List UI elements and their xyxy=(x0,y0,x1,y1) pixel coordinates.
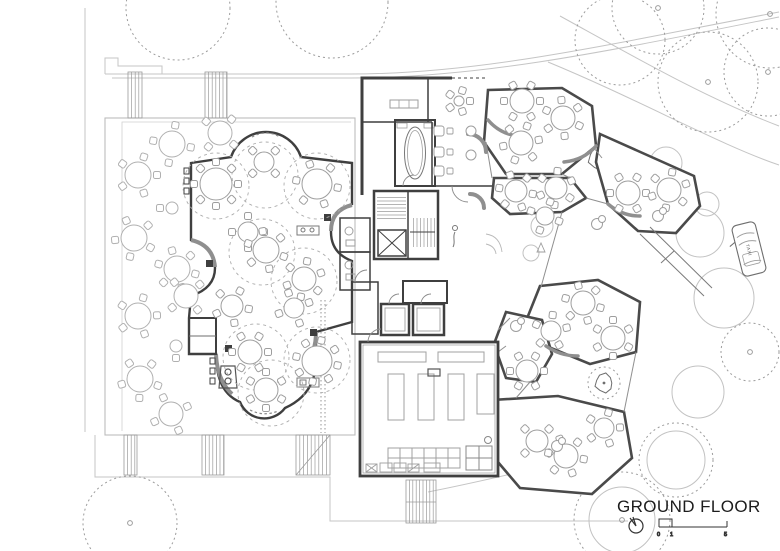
tree-canopy xyxy=(276,0,388,58)
cold-room-2 xyxy=(413,304,444,335)
chair xyxy=(495,184,503,192)
chair xyxy=(159,393,168,402)
chair xyxy=(153,312,160,319)
armchair xyxy=(434,126,444,136)
table-group xyxy=(150,393,192,435)
tree-solid xyxy=(694,268,754,328)
chair xyxy=(230,319,238,327)
oval-counter-inner xyxy=(408,131,423,176)
chair xyxy=(125,358,135,368)
pilaster xyxy=(210,378,215,384)
lounge-furniture xyxy=(434,86,476,176)
tree-canopy xyxy=(724,28,780,116)
wc-fixture xyxy=(346,240,355,246)
chair xyxy=(139,153,148,162)
ottoman xyxy=(447,128,453,134)
chair xyxy=(191,181,198,188)
stair-south-3-diagonal xyxy=(296,435,330,475)
tree-canopy xyxy=(716,0,780,68)
chair xyxy=(544,449,552,457)
tree-canopy xyxy=(721,323,779,381)
chair xyxy=(537,98,544,105)
tree-solid xyxy=(647,431,705,489)
chair xyxy=(554,167,562,175)
ottoman xyxy=(447,168,453,174)
chair xyxy=(263,369,270,376)
door-arc-lounge xyxy=(452,186,468,202)
chair xyxy=(499,142,507,150)
tree-trunk xyxy=(128,521,133,526)
chair xyxy=(153,381,162,390)
tree-canopy xyxy=(612,0,704,54)
chair xyxy=(467,98,474,105)
small-table xyxy=(599,216,606,223)
chair xyxy=(610,353,617,360)
pantry-shelf-ticks xyxy=(399,100,409,108)
chair xyxy=(183,402,192,411)
elevator-x xyxy=(378,230,406,256)
oval-room xyxy=(395,120,435,186)
plan-title: GROUND FLOOR xyxy=(617,497,761,516)
table-group xyxy=(118,153,161,198)
chair xyxy=(263,405,270,412)
tree-trunk xyxy=(748,350,753,355)
chair xyxy=(165,159,173,167)
chair xyxy=(117,380,126,389)
chair xyxy=(616,424,623,431)
person-figure-body xyxy=(453,232,455,247)
chair xyxy=(507,368,514,375)
north-arrow xyxy=(629,517,643,533)
chair xyxy=(136,394,143,401)
chair xyxy=(227,114,237,124)
pilaster xyxy=(210,368,215,374)
chair xyxy=(562,324,570,332)
chair xyxy=(154,172,161,179)
connector-glass-4 xyxy=(586,198,608,204)
chair xyxy=(213,159,220,166)
title-block: GROUND FLOOR 0 1 5 xyxy=(617,497,761,538)
chair xyxy=(111,236,119,244)
tree-canopy xyxy=(639,423,713,497)
tree-canopy xyxy=(658,32,758,132)
chair xyxy=(535,136,543,144)
chair xyxy=(535,226,544,235)
chair xyxy=(607,190,614,197)
scale-tick-1: 1 xyxy=(670,532,673,538)
side-table xyxy=(466,150,476,160)
chair xyxy=(445,103,455,113)
kitchen xyxy=(360,329,498,476)
door-arc-cold-1 xyxy=(389,294,399,304)
chair xyxy=(185,251,195,261)
connector-glass-7 xyxy=(624,352,636,412)
chair xyxy=(265,265,273,273)
service-core xyxy=(340,78,492,335)
side-table xyxy=(466,126,476,136)
stair-kitchen-south xyxy=(406,480,436,523)
chair xyxy=(191,270,200,279)
chair xyxy=(187,143,195,151)
chair xyxy=(308,377,316,385)
chair xyxy=(147,359,157,369)
chair xyxy=(324,374,334,384)
stair-treads xyxy=(128,435,135,475)
table-group xyxy=(117,358,162,401)
chair xyxy=(143,220,153,230)
chair xyxy=(245,305,253,313)
pilaster xyxy=(210,358,215,364)
door-arc-west-room xyxy=(355,270,367,282)
chair xyxy=(118,159,128,169)
chair xyxy=(555,217,564,226)
chair xyxy=(334,184,342,192)
chair xyxy=(229,229,236,236)
chair xyxy=(235,181,242,188)
wc-fixture xyxy=(345,227,353,235)
chair xyxy=(330,345,340,355)
chair xyxy=(610,317,617,324)
chair xyxy=(574,281,583,290)
tree-canopy xyxy=(83,476,177,551)
chair xyxy=(150,417,159,426)
chair xyxy=(118,323,128,333)
table-group xyxy=(201,114,238,151)
chair xyxy=(580,455,588,463)
chair xyxy=(541,368,548,375)
chair xyxy=(171,121,179,129)
scale-tick-5: 5 xyxy=(724,532,727,538)
chair xyxy=(514,381,524,391)
fan-plant-2 xyxy=(486,244,496,254)
table-group xyxy=(117,293,160,338)
chair xyxy=(583,316,592,325)
small-table xyxy=(559,438,566,445)
ottoman xyxy=(447,149,453,155)
chair xyxy=(174,426,183,435)
roof-edge-upper xyxy=(105,12,779,74)
chair xyxy=(203,142,213,152)
chair xyxy=(292,176,300,184)
oval-room-shelf xyxy=(397,123,407,128)
small-table xyxy=(518,318,525,325)
tree-solid xyxy=(523,245,539,261)
tree-canopy xyxy=(126,0,230,60)
chair xyxy=(265,349,272,356)
table-group xyxy=(170,340,182,362)
chair xyxy=(558,96,566,104)
table-group xyxy=(149,121,195,167)
tree-trunk xyxy=(620,518,625,523)
shrub-marks xyxy=(486,234,545,254)
armchair xyxy=(434,166,444,176)
chair xyxy=(173,355,180,362)
chair xyxy=(596,303,605,312)
pilaster xyxy=(184,178,189,184)
chair xyxy=(168,246,177,255)
stair-treads xyxy=(377,198,406,219)
armchair xyxy=(434,147,444,157)
table-group xyxy=(157,202,179,214)
stair-treads xyxy=(409,480,433,523)
chair xyxy=(157,205,164,212)
scale-tick-0: 0 xyxy=(657,532,660,538)
chair xyxy=(303,257,311,265)
chair xyxy=(195,279,205,289)
chair xyxy=(604,408,613,417)
tree-solid xyxy=(672,366,724,418)
small-table xyxy=(660,208,667,215)
chair xyxy=(139,189,148,198)
table-group xyxy=(445,86,473,116)
chair xyxy=(126,252,134,260)
chair xyxy=(139,293,148,302)
chair xyxy=(259,227,267,235)
chair xyxy=(245,213,252,220)
chair xyxy=(118,181,128,191)
chair xyxy=(549,311,557,319)
chair xyxy=(229,349,236,356)
chair xyxy=(501,98,508,105)
person-figure-head xyxy=(453,226,458,231)
pilaster xyxy=(184,188,189,194)
tree-trunk xyxy=(706,80,711,85)
walkway-rail-1 xyxy=(640,234,704,296)
pier xyxy=(310,329,317,336)
mid-room xyxy=(403,281,447,303)
chair xyxy=(668,168,676,176)
floor-plan-sheet: TAXI GROUND FLOOR 0 1 5 xyxy=(0,0,780,551)
chair xyxy=(292,352,300,360)
floor-plan: TAXI GROUND FLOOR 0 1 5 xyxy=(0,0,780,551)
chair xyxy=(458,107,467,116)
stair-treads xyxy=(209,72,227,118)
roof-edge-step xyxy=(105,58,162,74)
chair xyxy=(122,216,131,225)
chair xyxy=(149,137,157,145)
stair-treads xyxy=(206,435,224,475)
door-arc-oval-room xyxy=(403,175,414,186)
pier xyxy=(206,260,213,267)
cold-room-2-inner xyxy=(417,308,440,331)
chair xyxy=(561,294,570,303)
chair xyxy=(529,190,537,198)
taxi-car: TAXI xyxy=(725,221,767,279)
chair xyxy=(333,361,341,369)
pantry-shelf xyxy=(390,100,418,108)
entry-fan-wall-2 xyxy=(470,194,484,208)
chair xyxy=(140,329,149,338)
chair xyxy=(445,90,455,100)
chair xyxy=(458,86,467,95)
chair xyxy=(154,260,163,269)
taxi-mirror xyxy=(729,242,736,246)
tree-trunk xyxy=(656,6,661,11)
chair xyxy=(213,203,220,210)
chair xyxy=(167,303,177,313)
chair xyxy=(317,336,325,344)
door-arcs xyxy=(355,175,468,304)
kitchen-door-arc xyxy=(368,329,381,342)
chair xyxy=(117,301,127,311)
cold-room-1-inner xyxy=(385,308,405,331)
chair xyxy=(561,132,569,140)
chair xyxy=(146,243,156,253)
walkway-rail-2 xyxy=(650,227,712,288)
tree-center-dot xyxy=(603,382,606,385)
tree-trunk xyxy=(766,70,771,75)
table-group xyxy=(111,216,155,261)
stair-treads xyxy=(132,72,139,118)
chair xyxy=(159,277,169,287)
